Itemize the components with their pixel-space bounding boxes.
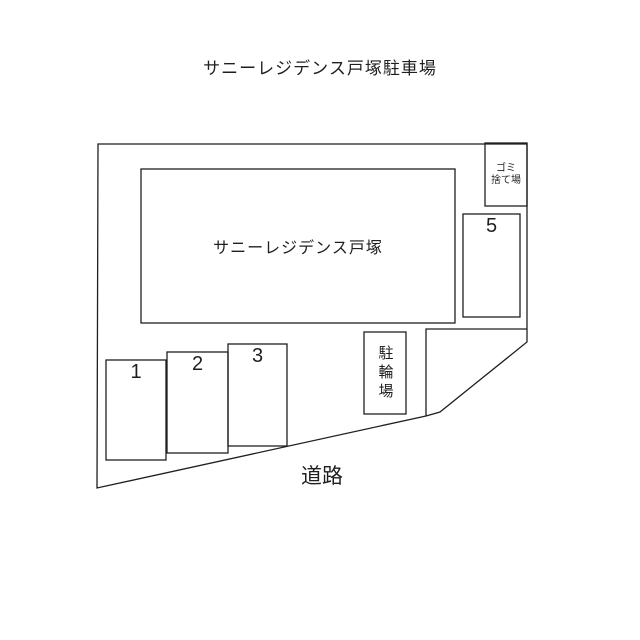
parking-lot-map-page: サニーレジデンス戸塚駐車場 サニーレジデンス戸塚 1 2 3 5 駐輪場 ゴミ … xyxy=(0,0,640,640)
parking-space-2-label: 2 xyxy=(167,353,228,376)
corner-parcel-lines xyxy=(426,329,527,416)
building-label: サニーレジデンス戸塚 xyxy=(141,169,455,323)
parking-space-3-label: 3 xyxy=(228,345,287,368)
parking-space-5-label: 5 xyxy=(463,215,520,238)
parking-space-1-label: 1 xyxy=(106,361,166,384)
garbage-area-label: ゴミ 捨て場 xyxy=(485,143,527,206)
bicycle-parking-label: 駐輪場 xyxy=(364,332,406,414)
road-label: 道路 xyxy=(272,460,372,490)
